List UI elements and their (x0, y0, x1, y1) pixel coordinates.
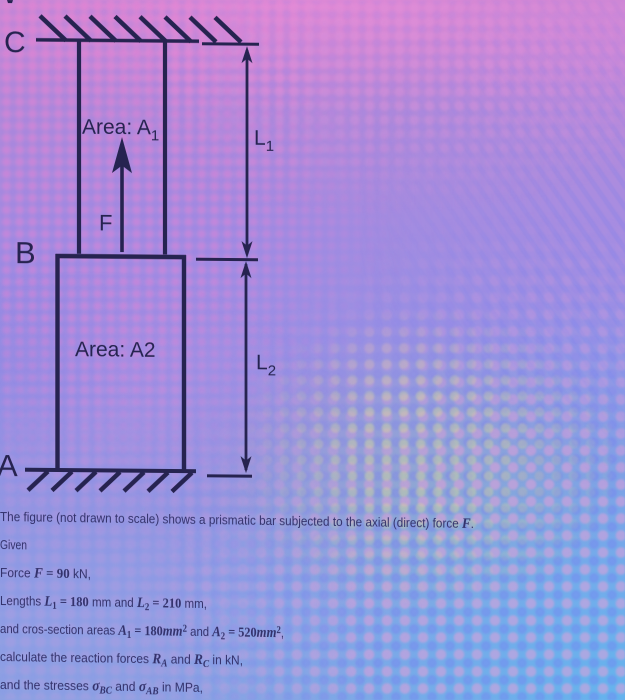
svg-text:F: F (99, 210, 112, 235)
svg-text:C: C (4, 26, 26, 59)
svg-text:L2: L2 (256, 351, 276, 379)
svg-text:Area: A2: Area: A2 (75, 338, 156, 362)
svg-text:B: B (15, 235, 36, 270)
svg-text:Area: A1: Area: A1 (82, 116, 159, 145)
svg-text:A: A (0, 448, 18, 483)
svg-text:L1: L1 (254, 127, 274, 155)
